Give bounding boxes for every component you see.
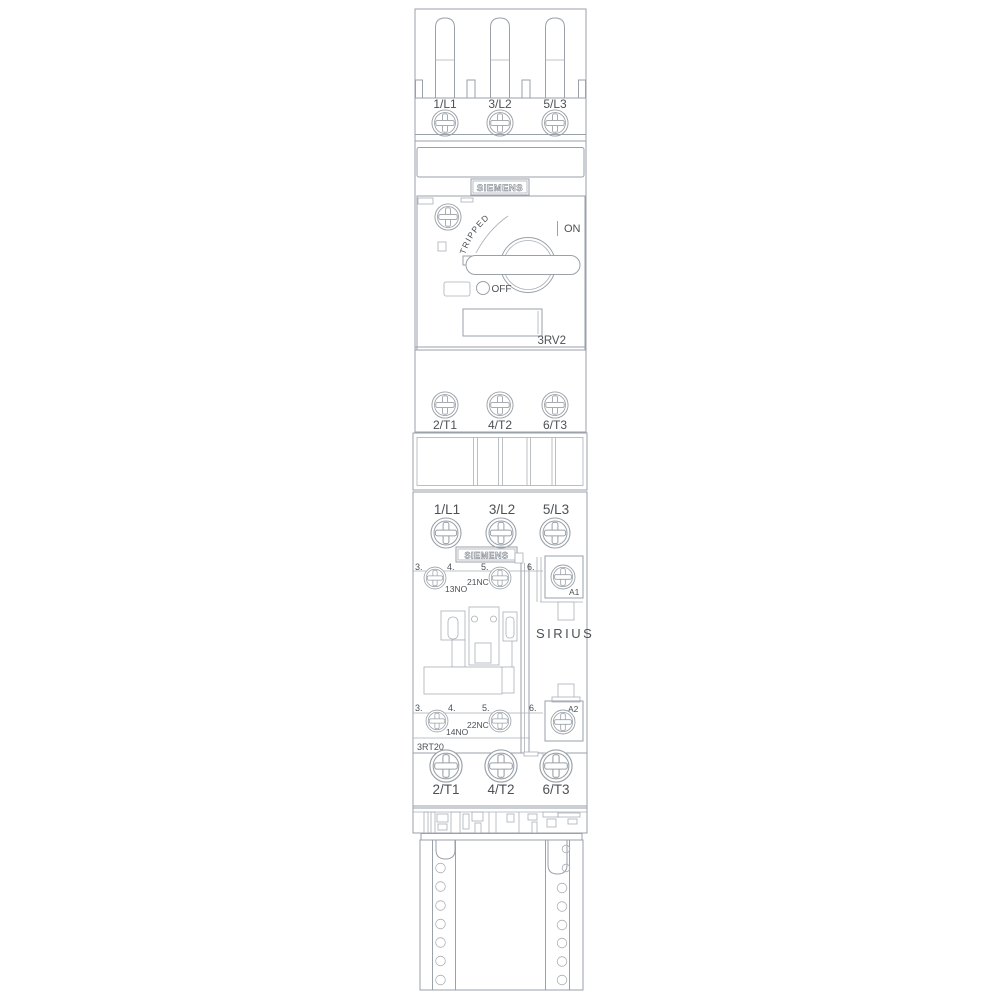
mounting-hole bbox=[436, 882, 446, 892]
coil-terminal-screw[interactable] bbox=[551, 565, 575, 589]
terminal-screw[interactable] bbox=[432, 392, 458, 418]
mounting-rail-left bbox=[433, 840, 456, 990]
rating-label-field bbox=[463, 309, 542, 336]
breaker-model-label: 3RV2 bbox=[537, 335, 566, 347]
mounting-hole bbox=[557, 975, 567, 985]
din-rail-clip-band bbox=[413, 808, 587, 833]
breaker-terminal-label-3l2: 3/L2 bbox=[488, 97, 512, 111]
terminal-screw[interactable] bbox=[487, 392, 513, 418]
coil-terminal-screw[interactable] bbox=[551, 710, 575, 734]
terminal-screw[interactable] bbox=[487, 110, 513, 136]
aux-label-21nc: 21NC bbox=[467, 577, 489, 587]
coil-terminal-a1: A1 bbox=[537, 556, 583, 620]
terminal-screw[interactable] bbox=[542, 392, 568, 418]
breaker-top-terminal-housing bbox=[415, 9, 586, 98]
aux-number: 5. bbox=[481, 562, 489, 572]
mounting-hole bbox=[562, 845, 570, 853]
aux-number: 3. bbox=[415, 562, 423, 572]
motor-starter-drawing: 1/L1 3/L2 5/L3 SIEMENS TRIPPED bbox=[0, 0, 1000, 1000]
aux-label-14no: 14NO bbox=[446, 727, 469, 737]
mounting-hole bbox=[557, 938, 567, 948]
siemens-logo-text: SIEMENS bbox=[477, 183, 523, 194]
contactor-3rt20: 1/L1 3/L2 5/L3 SIEMENS 3. 4. 5. 6. 13NO … bbox=[413, 492, 594, 808]
aux-contacts-top: 3. 4. 5. 6. 13NO 21NC bbox=[413, 562, 543, 594]
terminal-screw[interactable] bbox=[431, 518, 461, 548]
aux-number: 3. bbox=[415, 703, 423, 713]
contact-mechanism-detail bbox=[424, 607, 517, 694]
terminal-screw[interactable] bbox=[432, 110, 458, 136]
mounting-hole bbox=[557, 957, 567, 967]
aux-terminal-screw[interactable] bbox=[489, 567, 511, 589]
off-label: OFF bbox=[492, 284, 512, 295]
breaker-terminal-label-5l3: 5/L3 bbox=[543, 97, 567, 111]
aux-contacts-bottom: 3. 4. 5. 6. 22NC 14NO bbox=[413, 703, 543, 737]
line-prong-l2 bbox=[491, 18, 510, 98]
mounting-hole bbox=[436, 956, 446, 966]
aux-number: 5. bbox=[482, 703, 490, 713]
contactor-label-field bbox=[424, 667, 502, 694]
line-prong-l3 bbox=[546, 18, 565, 98]
aux-number: 6. bbox=[529, 703, 537, 713]
off-indicator-dot bbox=[477, 282, 490, 295]
aux-terminal-screw[interactable] bbox=[424, 567, 446, 589]
mounting-hole bbox=[557, 902, 567, 912]
aux-number: 4. bbox=[448, 703, 456, 713]
product-drawing-canvas: 1/L1 3/L2 5/L3 SIEMENS TRIPPED bbox=[0, 0, 1000, 1000]
terminal-screw[interactable] bbox=[486, 518, 516, 548]
coil-terminal-a2: A2 bbox=[545, 684, 583, 741]
contactor-model-label: 3RT20 bbox=[417, 742, 444, 752]
on-label: ON bbox=[564, 223, 581, 235]
mounting-hole bbox=[436, 938, 446, 948]
link-module bbox=[413, 433, 587, 490]
contactor-terminal-label-2t1: 2/T1 bbox=[432, 782, 459, 797]
terminal-screw[interactable] bbox=[542, 110, 568, 136]
siemens-logo-contactor: SIEMENS bbox=[456, 547, 517, 562]
breaker-terminal-label-4t2: 4/T2 bbox=[488, 418, 512, 432]
mounting-plate bbox=[420, 834, 583, 991]
aux-number: 4. bbox=[447, 562, 455, 572]
terminal-screw[interactable] bbox=[540, 750, 572, 782]
breaker-face: TRIPPED ON OFF 3RV2 bbox=[417, 196, 585, 350]
breaker-top-band bbox=[417, 148, 584, 178]
aux-terminal-screw[interactable] bbox=[489, 710, 511, 732]
mounting-rail-right bbox=[546, 840, 570, 990]
breaker-terminal-label-2t1: 2/T1 bbox=[433, 418, 457, 432]
mounting-screw-icon[interactable] bbox=[435, 204, 461, 230]
contactor-terminal-label-6t3: 6/T3 bbox=[542, 782, 569, 797]
mounting-hole bbox=[436, 975, 446, 985]
tripped-indicator-label: TRIPPED bbox=[457, 212, 491, 256]
mounting-hole bbox=[557, 883, 567, 893]
siemens-logo-text: SIEMENS bbox=[464, 551, 508, 561]
mounting-hole bbox=[557, 920, 567, 930]
circuit-breaker-3rv2: 1/L1 3/L2 5/L3 SIEMENS TRIPPED bbox=[415, 9, 586, 432]
terminal-screw[interactable] bbox=[430, 750, 462, 782]
coil-label-a1: A1 bbox=[569, 587, 580, 597]
aux-label-22nc: 22NC bbox=[467, 720, 489, 730]
aux-terminal-screw[interactable] bbox=[426, 710, 448, 732]
contactor-terminal-label-1l1: 1/L1 bbox=[434, 502, 460, 517]
contactor-terminal-label-4t2: 4/T2 bbox=[487, 782, 514, 797]
siemens-logo-breaker: SIEMENS bbox=[471, 179, 529, 195]
sirius-series-label: SIRIUS bbox=[536, 626, 594, 641]
breaker-terminal-label-6t3: 6/T3 bbox=[543, 418, 567, 432]
mounting-hole bbox=[436, 901, 446, 911]
mounting-hole bbox=[436, 919, 446, 929]
mounting-hole bbox=[436, 863, 446, 873]
aux-number: 6. bbox=[527, 562, 535, 572]
aux-label-13no: 13NO bbox=[445, 584, 468, 594]
test-button[interactable] bbox=[444, 282, 470, 296]
contactor-terminal-label-5l3: 5/L3 bbox=[543, 502, 569, 517]
breaker-terminal-label-1l1: 1/L1 bbox=[433, 97, 457, 111]
terminal-screw[interactable] bbox=[485, 750, 517, 782]
rail-slot bbox=[548, 840, 567, 874]
rail-slot bbox=[436, 840, 455, 859]
contactor-terminal-label-3l2: 3/L2 bbox=[489, 502, 515, 517]
terminal-screw[interactable] bbox=[540, 518, 570, 548]
line-prong-l1 bbox=[436, 18, 455, 98]
